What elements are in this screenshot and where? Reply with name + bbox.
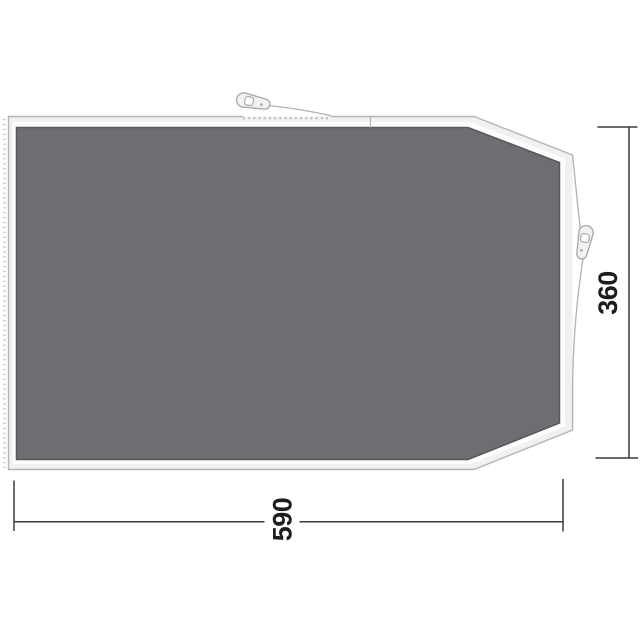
zipper-cord-right [573,259,583,382]
width-dimension: 590 [14,479,563,541]
height-dimension-label: 360 [593,271,623,315]
zipper-pull-right-icon [574,224,595,260]
inner-panel [17,128,560,460]
footprint-diagram-svg: 590 360 [0,0,640,640]
width-dimension-label: 590 [268,498,298,542]
product-diagram: 590 360 [0,0,640,640]
height-dimension: 360 [593,127,638,458]
zipper-pull-top-icon [235,92,271,113]
zipper-cord-top [269,106,331,116]
